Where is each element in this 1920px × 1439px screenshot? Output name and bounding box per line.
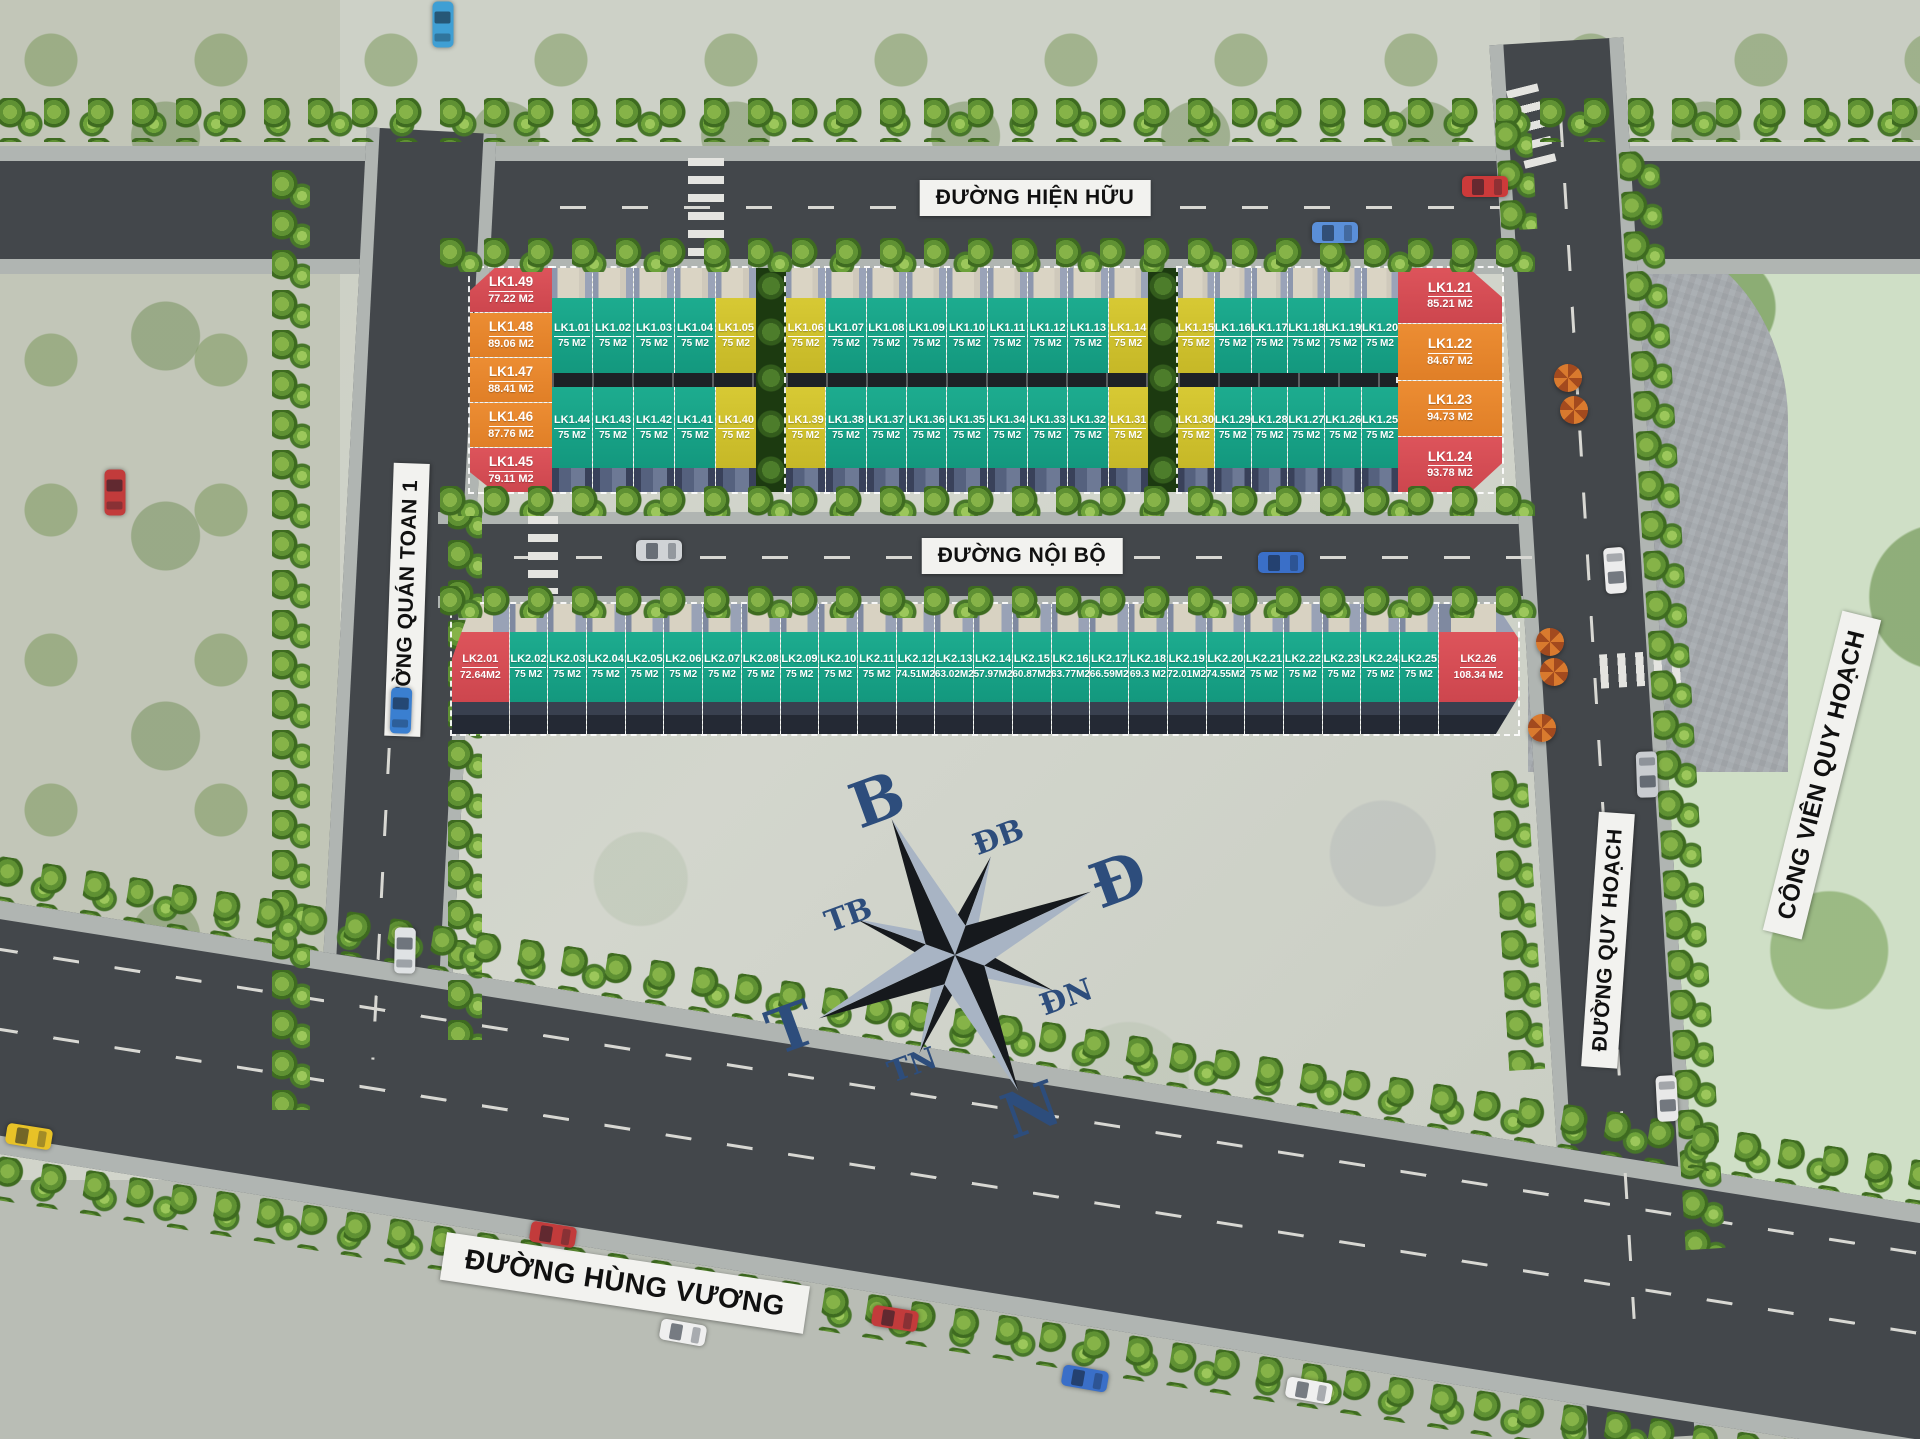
lot-facade-icon	[1245, 702, 1283, 734]
lot[interactable]: LK1.23 94.73 M2	[1398, 381, 1502, 437]
lot[interactable]: LK1.22 84.67 M2	[1398, 324, 1502, 380]
lot-area: 75 M2	[1074, 431, 1102, 441]
lot-id: LK1.23	[1428, 393, 1472, 410]
lot-id: LK1.22	[1428, 337, 1472, 354]
lot-id: LK1.36	[909, 415, 945, 429]
lot[interactable]: LK1.34 75 M2	[988, 387, 1028, 492]
lot[interactable]: LK1.28 75 M2	[1252, 387, 1289, 492]
lot-id: LK1.46	[489, 410, 533, 427]
lot-label: LK1.35 75 M2	[947, 387, 986, 468]
lot-label: LK1.23 94.73 M2	[1398, 381, 1502, 436]
lot-label: LK1.20 75 M2	[1362, 298, 1398, 373]
lot-label: LK1.28 75 M2	[1252, 387, 1288, 468]
lot-id: LK2.04	[588, 654, 624, 668]
compass-north-label: B	[840, 760, 914, 843]
lot-area: 75 M2	[1034, 339, 1062, 349]
lot-label: LK1.08 75 M2	[867, 298, 906, 373]
lot[interactable]: LK2.23 75 M2	[1323, 604, 1362, 734]
lot[interactable]: LK1.19 75 M2	[1325, 268, 1362, 373]
lot-id: LK2.13	[936, 654, 972, 668]
lot[interactable]: LK2.11 75 M2	[858, 604, 897, 734]
lot-area: 66.59M2	[1090, 670, 1129, 680]
lot-label: LK2.26 108.34 M2	[1439, 632, 1518, 702]
car	[1655, 1075, 1678, 1122]
lot-id: LK1.01	[554, 323, 590, 337]
lot-area: 75 M2	[1366, 339, 1394, 349]
lot-id: LK1.15	[1178, 323, 1214, 337]
lot-label: LK2.13 63.02M2	[935, 632, 973, 702]
block-b-top-row: LK1.06 75 M2 LK1.07 75 M2 LK1.08 75 M2 L…	[786, 268, 1148, 373]
lot[interactable]: LK1.05 75 M2	[716, 268, 756, 373]
lot-id: LK2.25	[1401, 654, 1437, 668]
lot[interactable]: LK1.24 93.78 M2	[1398, 437, 1502, 492]
block-alley	[786, 373, 1148, 387]
lot-label: LK1.21 85.21 M2	[1398, 268, 1502, 323]
lot[interactable]: LK1.01 75 M2	[552, 268, 593, 373]
lot[interactable]: LK1.08 75 M2	[867, 268, 907, 373]
lot-area: 75 M2	[993, 339, 1021, 349]
lot-label: LK1.13 75 M2	[1068, 298, 1107, 373]
lot-area: 75 M2	[1329, 431, 1357, 441]
lot-id: LK2.09	[781, 654, 817, 668]
lot-facade-icon	[858, 702, 896, 734]
lot-label: LK1.29 75 M2	[1215, 387, 1251, 468]
lot-facade-icon	[935, 702, 973, 734]
lot-area: 75 M2	[786, 670, 814, 680]
lot[interactable]: LK2.20 74.55M2	[1207, 604, 1246, 734]
lot-label: LK2.02 75 M2	[510, 632, 548, 702]
lot-label: LK1.06 75 M2	[786, 298, 825, 373]
lot-label: LK1.19 75 M2	[1325, 298, 1361, 373]
lot-area: 75 M2	[1289, 670, 1317, 680]
lot-facade-icon	[742, 702, 780, 734]
lot[interactable]: LK2.08 75 M2	[742, 604, 781, 734]
lot-area: 75 M2	[722, 339, 750, 349]
lot[interactable]: LK1.18 75 M2	[1288, 268, 1325, 373]
lot-area: 75 M2	[1114, 431, 1142, 441]
lot[interactable]: LK1.10 75 M2	[947, 268, 987, 373]
lot-label: LK2.21 75 M2	[1245, 632, 1283, 702]
lot[interactable]: LK1.12 75 M2	[1028, 268, 1068, 373]
lot-area: 84.67 M2	[1427, 356, 1473, 367]
lot[interactable]: LK1.29 75 M2	[1215, 387, 1252, 492]
lot[interactable]: LK2.05 75 M2	[626, 604, 665, 734]
lot-id: LK2.07	[704, 654, 740, 668]
lot-id: LK1.11	[990, 323, 1025, 337]
lot-area: 94.73 M2	[1427, 412, 1473, 423]
lot-label: LK1.34 75 M2	[988, 387, 1027, 468]
lot[interactable]: LK1.07 75 M2	[826, 268, 866, 373]
car	[390, 687, 413, 734]
lot-id: LK2.23	[1323, 654, 1359, 668]
lot-label: LK1.49 77.22 M2	[470, 268, 552, 312]
lot-id: LK1.34	[989, 415, 1025, 429]
tree-gap	[756, 268, 786, 492]
lot-id: LK2.19	[1169, 654, 1205, 668]
lot-area: 57.97M2	[974, 670, 1013, 680]
lot[interactable]: LK1.06 75 M2	[786, 268, 826, 373]
lot[interactable]: LK2.02 75 M2	[510, 604, 549, 734]
lot-area: 75 M2	[792, 339, 820, 349]
lot[interactable]: LK1.46 87.76 M2	[470, 403, 552, 448]
lot-label: LK2.03 75 M2	[548, 632, 586, 702]
lot-id: LK1.10	[949, 323, 985, 337]
lot-area: 75 M2	[1219, 339, 1247, 349]
lot-id: LK1.32	[1070, 415, 1106, 429]
lot-id: LK1.49	[489, 275, 533, 292]
lot[interactable]: LK1.49 77.22 M2	[470, 268, 552, 313]
lot-id: LK1.45	[489, 455, 533, 472]
lot[interactable]: LK1.21 85.21 M2	[1398, 268, 1502, 324]
lot-id: LK2.22	[1285, 654, 1321, 668]
lot-id: LK1.08	[868, 323, 904, 337]
lot-label: LK2.09 75 M2	[781, 632, 819, 702]
lot[interactable]: LK1.33 75 M2	[1028, 387, 1068, 492]
lot[interactable]: LK2.14 57.97M2	[974, 604, 1013, 734]
lot-area: 75 M2	[953, 339, 981, 349]
lot-label: LK1.22 84.67 M2	[1398, 324, 1502, 379]
lot[interactable]: LK1.25 75 M2	[1362, 387, 1398, 492]
lot-id: LK2.02	[510, 654, 546, 668]
lot-roof-icon	[907, 268, 946, 298]
car	[1636, 751, 1659, 798]
lot-id: LK1.12	[1030, 323, 1066, 337]
lot[interactable]: LK2.03 75 M2	[548, 604, 587, 734]
lot-facade-icon	[1168, 702, 1206, 734]
lot-area: 75 M2	[1074, 339, 1102, 349]
lot-label: LK1.43 75 M2	[593, 387, 633, 468]
lot-roof-icon	[1068, 268, 1107, 298]
lot-column-east: LK1.21 85.21 M2 LK1.22 84.67 M2 LK1.23 9…	[1398, 268, 1502, 492]
lot-area: 75 M2	[832, 339, 860, 349]
lot[interactable]: LK1.16 75 M2	[1215, 268, 1252, 373]
lot-label: LK1.18 75 M2	[1288, 298, 1324, 373]
lot[interactable]: LK1.44 75 M2	[552, 387, 593, 492]
lot-area: 63.02M2	[935, 670, 974, 680]
lot-area: 75 M2	[708, 670, 736, 680]
lot-id: LK1.29	[1215, 415, 1251, 429]
lot-id: LK1.25	[1362, 415, 1398, 429]
lot-label: LK2.20 74.55M2	[1207, 632, 1245, 702]
lot-area: 75 M2	[640, 339, 668, 349]
lot[interactable]: LK2.01 72.64M2	[452, 604, 510, 734]
lot[interactable]: LK2.15 60.87M2	[1013, 604, 1052, 734]
lot[interactable]: LK2.07 75 M2	[703, 604, 742, 734]
lot[interactable]: LK1.31 75 M2	[1109, 387, 1148, 492]
row2-strip: LK2.01 72.64M2 LK2.02 75 M2 LK2.03 75 M2…	[452, 604, 1518, 734]
lot[interactable]: LK1.32 75 M2	[1068, 387, 1108, 492]
lot-area: 88.41 M2	[488, 384, 534, 395]
lot-id: LK1.33	[1030, 415, 1066, 429]
lot-area: 72.01M2	[1167, 670, 1206, 680]
lot-column-west: LK1.49 77.22 M2 LK1.48 89.06 M2 LK1.47 8…	[470, 268, 552, 492]
lot[interactable]: LK1.38 75 M2	[826, 387, 866, 492]
compass-rose: B Đ N T ĐB ĐN TB TN	[760, 760, 1150, 1150]
lot-label: LK2.07 75 M2	[703, 632, 741, 702]
lot-label: LK1.42 75 M2	[634, 387, 674, 468]
car	[1603, 547, 1627, 594]
lot-label: LK2.01 72.64M2	[452, 632, 509, 702]
lot-label: LK1.38 75 M2	[826, 387, 865, 468]
lot-area: 75 M2	[872, 431, 900, 441]
lot-facade-icon	[1013, 702, 1051, 734]
lot-area: 75 M2	[1328, 670, 1356, 680]
tree-row	[440, 486, 1535, 516]
lot-id: LK1.18	[1288, 323, 1324, 337]
lot-area: 74.51M2	[896, 670, 935, 680]
lot-id: LK1.19	[1325, 323, 1361, 337]
lot-id: LK2.16	[1052, 654, 1088, 668]
lot-area: 75 M2	[722, 431, 750, 441]
lot[interactable]: LK2.17 66.59M2	[1090, 604, 1129, 734]
lot-id: LK1.39	[788, 415, 824, 429]
lot[interactable]: LK1.26 75 M2	[1325, 387, 1362, 492]
block-alley	[552, 373, 756, 387]
lot-label: LK2.23 75 M2	[1323, 632, 1361, 702]
lot-label: LK1.47 88.41 M2	[470, 358, 552, 402]
umbrella-icon	[1536, 628, 1564, 656]
lot-label: LK2.17 66.59M2	[1090, 632, 1128, 702]
lot[interactable]: LK1.35 75 M2	[947, 387, 987, 492]
lot[interactable]: LK1.47 88.41 M2	[470, 358, 552, 403]
car	[433, 2, 454, 48]
lot-id: LK1.30	[1178, 415, 1214, 429]
lot-id: LK1.43	[595, 415, 631, 429]
lot[interactable]: LK1.36 75 M2	[907, 387, 947, 492]
lot-facade-icon	[897, 702, 935, 734]
lot-label: LK2.04 75 M2	[587, 632, 625, 702]
lot-facade-icon	[626, 702, 664, 734]
lot[interactable]: LK1.15 75 M2	[1178, 268, 1215, 373]
lot-label: LK1.12 75 M2	[1028, 298, 1067, 373]
lot-area: 75 M2	[913, 339, 941, 349]
lot-label: LK1.26 75 M2	[1325, 387, 1361, 468]
lot-roof-icon	[593, 268, 633, 298]
lot[interactable]: LK1.02 75 M2	[593, 268, 634, 373]
lot-label: LK2.15 60.87M2	[1013, 632, 1051, 702]
lot-roof-icon	[552, 268, 592, 298]
lot[interactable]: LK2.26 108.34 M2	[1439, 604, 1518, 734]
lot-id: LK1.17	[1252, 323, 1288, 337]
lot[interactable]: LK2.13 63.02M2	[935, 604, 974, 734]
lot-area: 75 M2	[1366, 431, 1394, 441]
block-c-bottom-row: LK1.30 75 M2 LK1.29 75 M2 LK1.28 75 M2 L…	[1178, 387, 1398, 492]
lot-area: 75 M2	[1329, 339, 1357, 349]
lot-id: LK1.37	[868, 415, 904, 429]
lot-area: 75 M2	[824, 670, 852, 680]
lot-id: LK1.47	[489, 365, 533, 382]
lot[interactable]: LK2.10 75 M2	[819, 604, 858, 734]
lot-id: LK1.24	[1428, 450, 1472, 467]
car	[394, 927, 416, 973]
lot-roof-icon	[1109, 268, 1148, 298]
lot-facade-icon	[1361, 702, 1399, 734]
lot-facade-icon	[1323, 702, 1361, 734]
lot[interactable]: LK2.21 75 M2	[1245, 604, 1284, 734]
lot-id: LK2.05	[627, 654, 663, 668]
lot-roof-icon	[826, 268, 865, 298]
lot-label: LK1.07 75 M2	[826, 298, 865, 373]
lot-label: LK1.46 87.76 M2	[470, 403, 552, 447]
umbrella-icon	[1560, 396, 1588, 424]
lot-label: LK2.25 75 M2	[1400, 632, 1438, 702]
lot[interactable]: LK2.04 75 M2	[587, 604, 626, 734]
lot-id: LK1.13	[1070, 323, 1106, 337]
lot[interactable]: LK1.39 75 M2	[786, 387, 826, 492]
lot-id: LK2.18	[1130, 654, 1166, 668]
lot-roof-icon	[634, 268, 674, 298]
lot-area: 75 M2	[1256, 339, 1284, 349]
lot-roof-icon	[716, 268, 756, 298]
block-c: LK1.15 75 M2 LK1.16 75 M2 LK1.17 75 M2 L…	[1178, 268, 1398, 492]
lot[interactable]: LK1.17 75 M2	[1252, 268, 1289, 373]
estate-row-2: LK2.01 72.64M2 LK2.02 75 M2 LK2.03 75 M2…	[452, 604, 1518, 734]
tree-row	[440, 586, 1540, 618]
lot-roof-icon	[1215, 268, 1251, 298]
lot-label: LK1.30 75 M2	[1178, 387, 1214, 468]
lot-id: LK1.44	[554, 415, 590, 429]
umbrella-icon	[1540, 658, 1568, 686]
lot-area: 75 M2	[553, 670, 581, 680]
lot[interactable]: LK1.37 75 M2	[867, 387, 907, 492]
lot-label: LK2.08 75 M2	[742, 632, 780, 702]
lot-area: 75 M2	[792, 431, 820, 441]
lot[interactable]: LK2.12 74.51M2	[897, 604, 936, 734]
lot-area: 75 M2	[640, 431, 668, 441]
lot-id: LK1.02	[595, 323, 631, 337]
lot[interactable]: LK2.18 69.3 M2	[1129, 604, 1168, 734]
lot-facade-icon	[587, 702, 625, 734]
lot-area: 75 M2	[872, 339, 900, 349]
lot-area: 75 M2	[1114, 339, 1142, 349]
lot-label: LK2.11 75 M2	[858, 632, 896, 702]
lot-id: LK1.09	[909, 323, 945, 337]
lot[interactable]: LK1.27 75 M2	[1288, 387, 1325, 492]
lot-roof-icon	[1178, 268, 1214, 298]
lot-facade-icon	[1284, 702, 1322, 734]
lot[interactable]: LK1.11 75 M2	[988, 268, 1028, 373]
lot[interactable]: LK1.14 75 M2	[1109, 268, 1148, 373]
lot-id: LK1.05	[718, 323, 754, 337]
lot-area: 75 M2	[1182, 339, 1210, 349]
car	[105, 470, 126, 516]
lot-roof-icon	[1252, 268, 1288, 298]
lot-area: 75 M2	[1293, 431, 1321, 441]
block-a-top-row: LK1.01 75 M2 LK1.02 75 M2 LK1.03 75 M2 L…	[552, 268, 756, 373]
lot-area: 89.06 M2	[488, 339, 534, 350]
lot-id: LK1.48	[489, 320, 533, 337]
lot[interactable]: LK2.19 72.01M2	[1168, 604, 1207, 734]
tree-gap	[1148, 268, 1178, 492]
tree-row	[272, 170, 310, 1110]
lot-area: 75 M2	[669, 670, 697, 680]
lot[interactable]: LK1.13 75 M2	[1068, 268, 1108, 373]
lot[interactable]: LK2.22 75 M2	[1284, 604, 1323, 734]
lot-area: 72.64M2	[460, 670, 501, 681]
lot[interactable]: LK2.24 75 M2	[1361, 604, 1400, 734]
lot[interactable]: LK2.16 63.77M2	[1052, 604, 1091, 734]
lot-id: LK1.42	[636, 415, 672, 429]
lot-facade-icon	[1090, 702, 1128, 734]
lot-facade-icon	[819, 702, 857, 734]
lot-id: LK2.03	[549, 654, 585, 668]
lot-area: 75 M2	[1219, 431, 1247, 441]
lot-label: LK1.04 75 M2	[675, 298, 715, 373]
lot-id: LK2.01	[462, 654, 498, 668]
lot-id: LK1.41	[677, 415, 713, 429]
lot-area: 75 M2	[558, 339, 586, 349]
lot[interactable]: LK1.41 75 M2	[675, 387, 716, 492]
lot-area: 63.77M2	[1051, 670, 1090, 680]
umbrella-icon	[1528, 714, 1556, 742]
lot-roof-icon	[1325, 268, 1361, 298]
lot-area: 75 M2	[1256, 431, 1284, 441]
lot[interactable]: LK1.30 75 M2	[1178, 387, 1215, 492]
lot-label: LK1.17 75 M2	[1252, 298, 1288, 373]
lot-id: LK1.38	[828, 415, 864, 429]
lot-id: LK2.10	[820, 654, 856, 668]
lot-roof-icon	[1028, 268, 1067, 298]
lot-facade-icon	[781, 702, 819, 734]
street-label-noi-bo: ĐƯỜNG NỘI BỘ	[922, 538, 1123, 574]
lot[interactable]: LK2.09 75 M2	[781, 604, 820, 734]
lot-facade-icon	[703, 702, 741, 734]
tree-row	[1495, 119, 1538, 231]
lot-label: LK2.06 75 M2	[664, 632, 702, 702]
lot-area: 108.34 M2	[1454, 670, 1504, 681]
lot-roof-icon	[947, 268, 986, 298]
lot-area: 75 M2	[1250, 670, 1278, 680]
lot-label: LK1.48 89.06 M2	[470, 313, 552, 357]
lot-id: LK2.17	[1091, 654, 1127, 668]
lot[interactable]: LK1.04 75 M2	[675, 268, 716, 373]
lot-area: 74.55M2	[1206, 670, 1245, 680]
lot-area: 75 M2	[599, 431, 627, 441]
lot-area: 75 M2	[631, 670, 659, 680]
compass-northeast-label: ĐB	[968, 812, 1028, 863]
lot[interactable]: LK1.43 75 M2	[593, 387, 634, 492]
lot-facade-icon	[974, 702, 1012, 734]
lot-label: LK1.44 75 M2	[552, 387, 592, 468]
lot[interactable]: LK1.09 75 M2	[907, 268, 947, 373]
lot-roof-icon	[1288, 268, 1324, 298]
lot-label: LK1.41 75 M2	[675, 387, 715, 468]
lot[interactable]: LK1.20 75 M2	[1362, 268, 1398, 373]
lot-label: LK1.05 75 M2	[716, 298, 756, 373]
lot-label: LK2.19 72.01M2	[1168, 632, 1206, 702]
lot-id: LK2.08	[743, 654, 779, 668]
lot-id: LK1.26	[1325, 415, 1361, 429]
lot[interactable]: LK1.03 75 M2	[634, 268, 675, 373]
car	[636, 540, 682, 561]
lot[interactable]: LK2.25 75 M2	[1400, 604, 1439, 734]
lot[interactable]: LK1.40 75 M2	[716, 387, 756, 492]
compass-east-label: Đ	[1080, 836, 1150, 923]
lot-facade-icon	[1129, 702, 1167, 734]
lot[interactable]: LK1.42 75 M2	[634, 387, 675, 492]
lot[interactable]: LK1.48 89.06 M2	[470, 313, 552, 358]
compass-west-label: T	[760, 986, 825, 1070]
lot-label: LK1.02 75 M2	[593, 298, 633, 373]
lot-area: 75 M2	[1034, 431, 1062, 441]
lot-id: LK1.21	[1428, 281, 1472, 298]
lot-area: 85.21 M2	[1427, 299, 1473, 310]
lot-label: LK2.16 63.77M2	[1052, 632, 1090, 702]
lot-label: LK1.37 75 M2	[867, 387, 906, 468]
lot-id: LK2.14	[975, 654, 1011, 668]
lot-label: LK1.09 75 M2	[907, 298, 946, 373]
lot[interactable]: LK2.06 75 M2	[664, 604, 703, 734]
